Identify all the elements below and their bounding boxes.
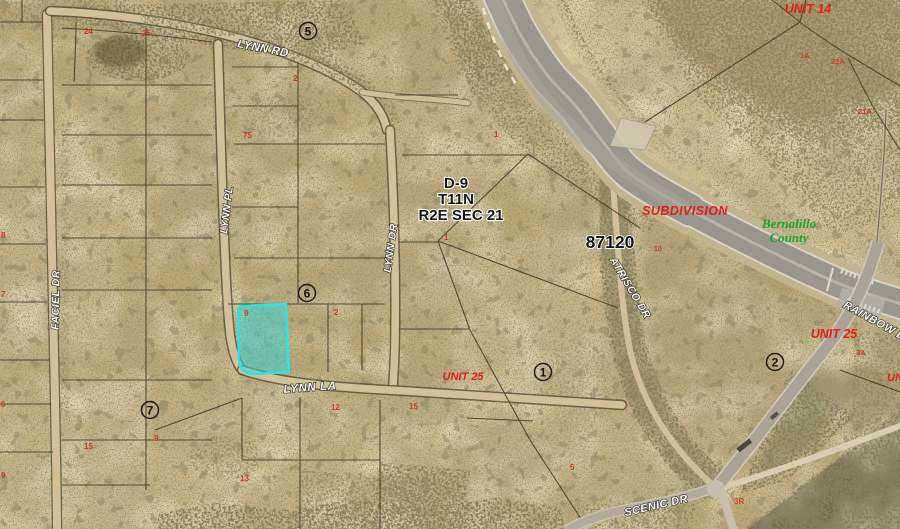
svg-text:21A: 21A: [858, 107, 872, 116]
svg-text:13: 13: [240, 474, 249, 483]
svg-text:UNIT 25: UNIT 25: [811, 327, 859, 341]
svg-text:UNIT 14: UNIT 14: [785, 2, 832, 16]
svg-text:1: 1: [444, 233, 449, 242]
svg-text:7: 7: [147, 404, 154, 418]
svg-text:15: 15: [409, 402, 418, 411]
svg-text:R2E SEC 21: R2E SEC 21: [418, 207, 503, 224]
svg-text:5: 5: [570, 463, 575, 472]
svg-text:25: 25: [142, 29, 151, 38]
svg-text:UNIT 25: UNIT 25: [443, 371, 485, 383]
svg-text:9: 9: [244, 309, 249, 318]
svg-text:1A: 1A: [800, 51, 810, 60]
svg-text:FACIEL DR: FACIEL DR: [49, 270, 62, 330]
svg-text:6: 6: [1, 400, 6, 409]
svg-text:T11N: T11N: [438, 191, 474, 208]
svg-text:3A: 3A: [856, 348, 866, 357]
svg-text:6: 6: [304, 287, 311, 301]
svg-text:2: 2: [293, 74, 298, 83]
svg-text:7: 7: [1, 290, 6, 299]
svg-text:9: 9: [1, 471, 6, 480]
svg-text:UN: UN: [887, 372, 900, 384]
svg-text:Bernalillo: Bernalillo: [761, 216, 817, 231]
svg-text:D-9: D-9: [444, 175, 468, 192]
svg-text:10: 10: [654, 246, 662, 253]
svg-text:87120: 87120: [586, 232, 635, 252]
svg-text:12: 12: [331, 403, 340, 412]
svg-text:8: 8: [1, 231, 6, 240]
svg-text:2: 2: [334, 308, 339, 317]
svg-text:1: 1: [540, 366, 547, 380]
svg-text:75: 75: [243, 131, 252, 140]
svg-text:1: 1: [494, 130, 499, 139]
svg-text:15: 15: [84, 442, 93, 451]
svg-text:5: 5: [305, 25, 312, 39]
svg-text:3R: 3R: [734, 497, 744, 506]
svg-text:9: 9: [154, 434, 159, 443]
svg-text:24: 24: [84, 27, 93, 36]
svg-text:County: County: [769, 230, 808, 245]
svg-text:22A: 22A: [831, 57, 845, 66]
svg-text:2: 2: [772, 356, 779, 370]
svg-text:SUBDIVISION: SUBDIVISION: [642, 204, 728, 218]
